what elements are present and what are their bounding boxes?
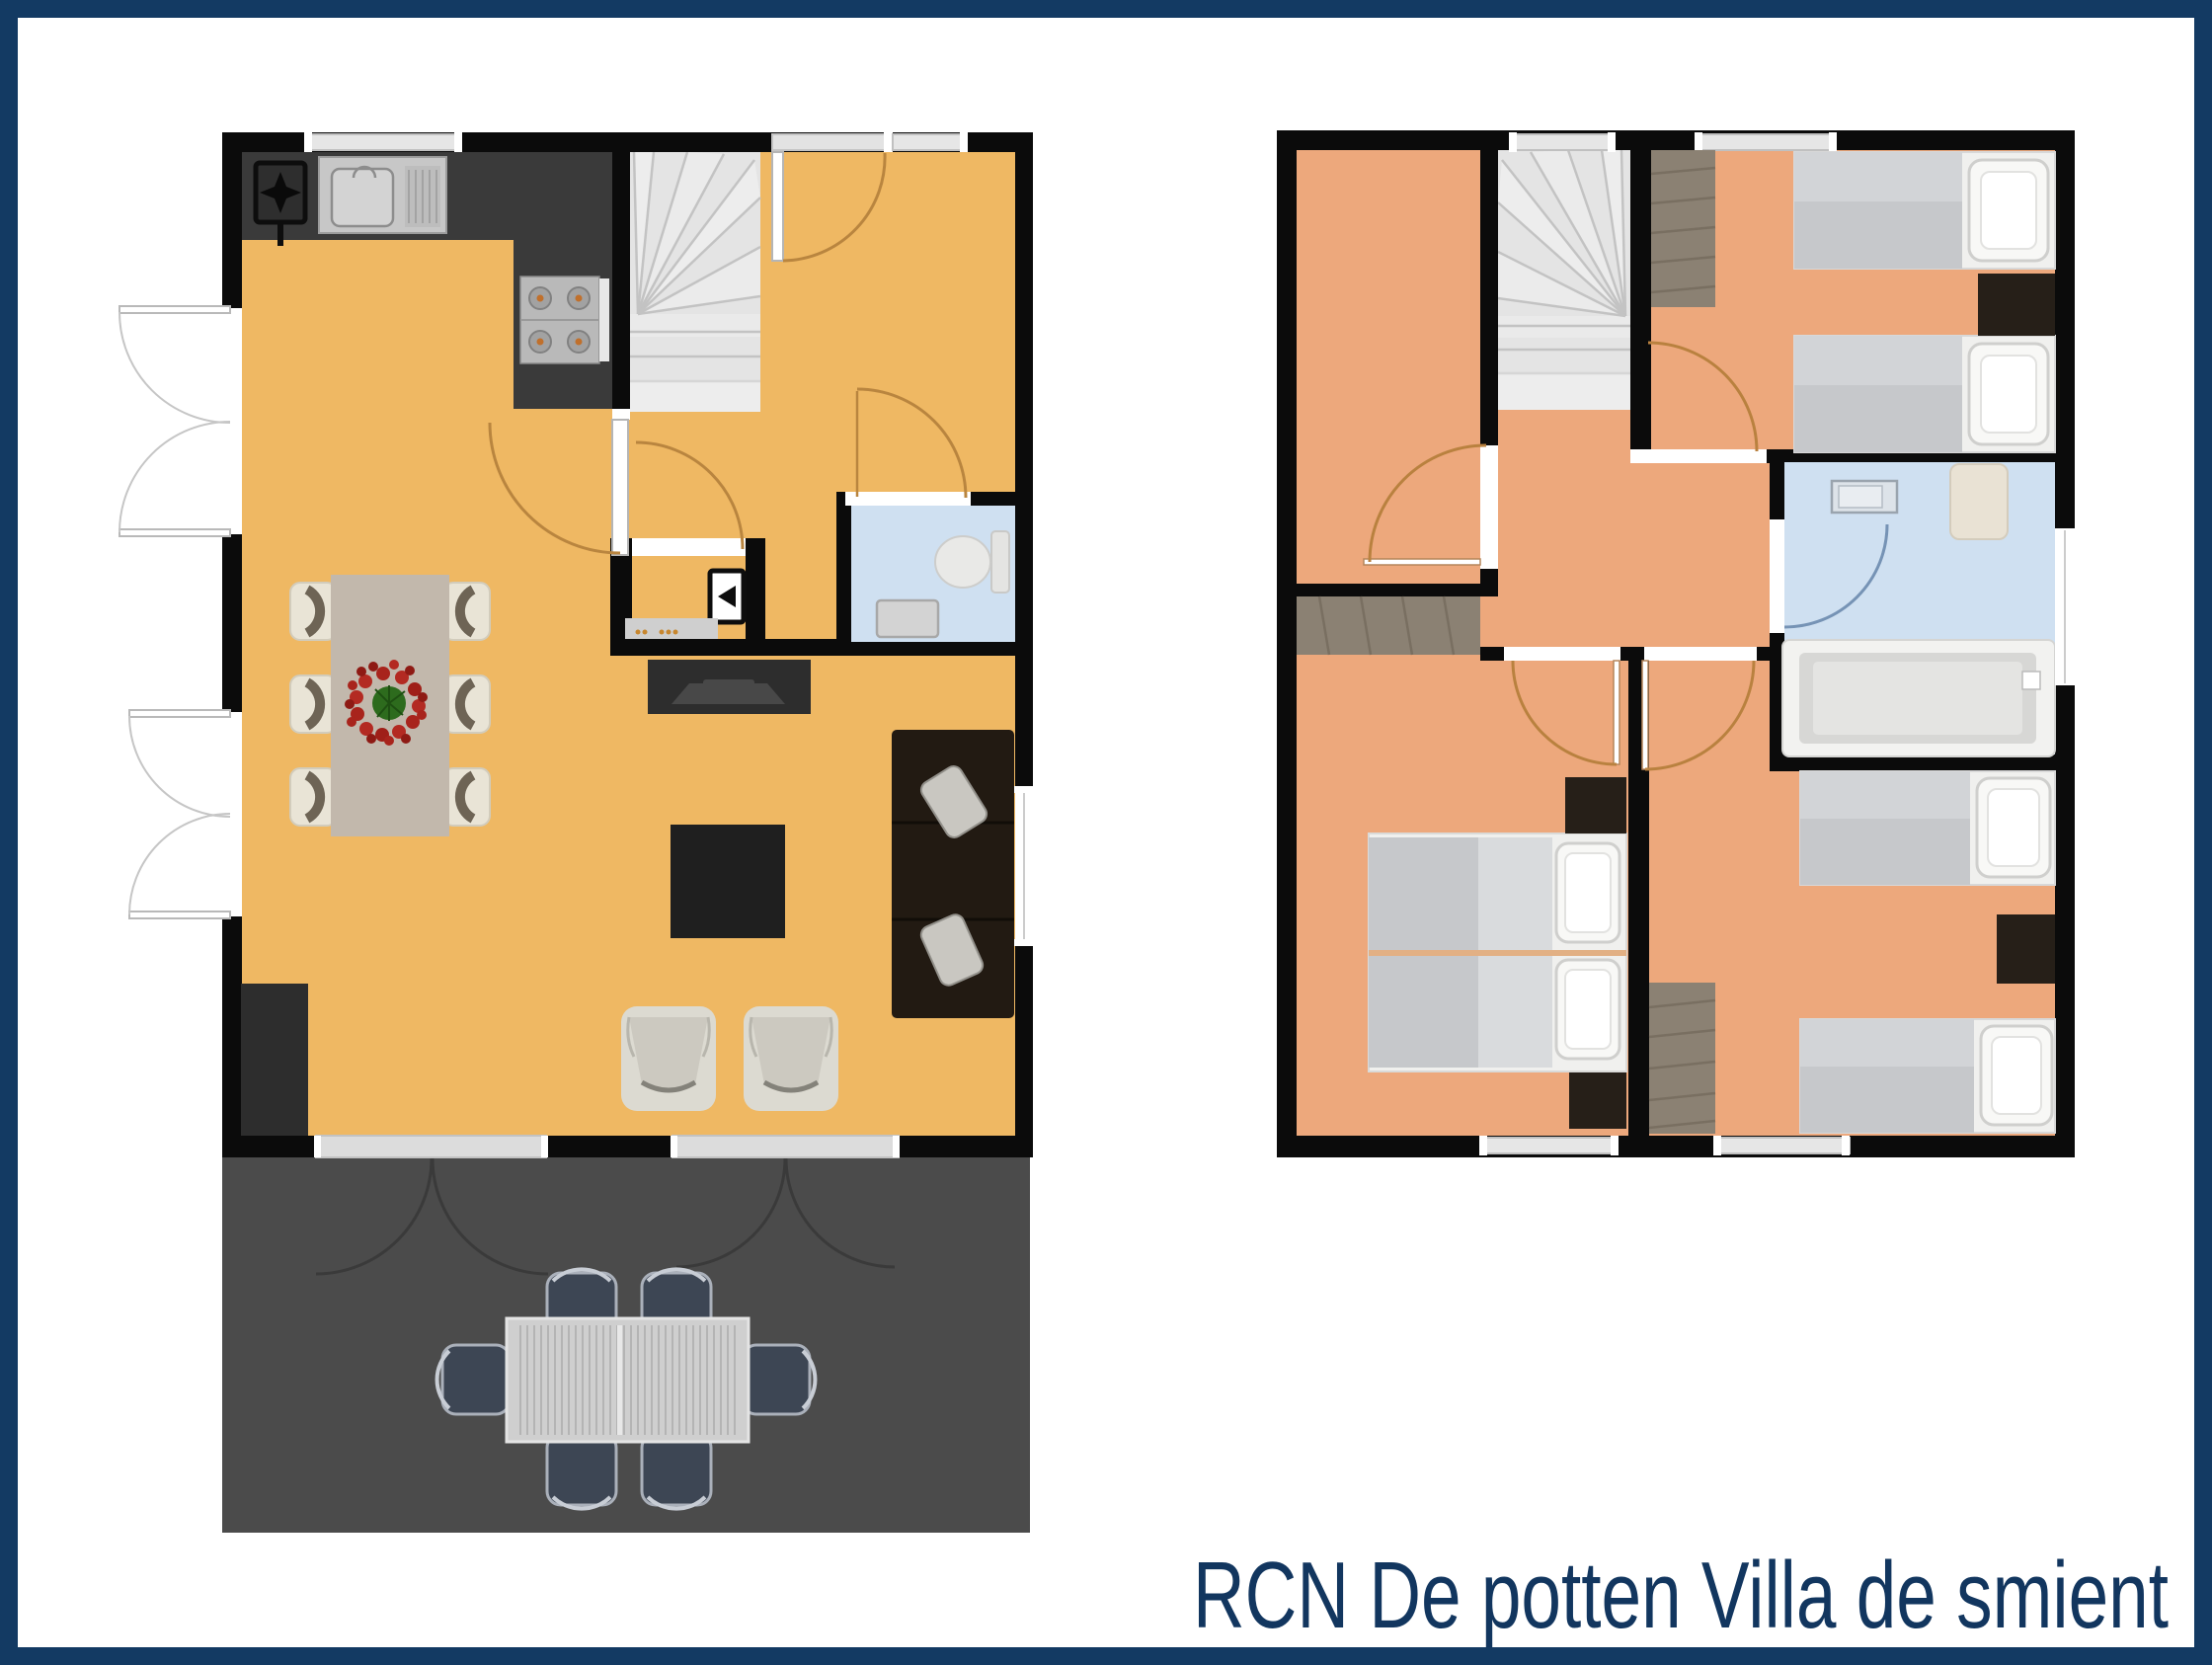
svg-text:RCN De potten Villa de smient: RCN De potten Villa de smient [1193,1543,2169,1648]
